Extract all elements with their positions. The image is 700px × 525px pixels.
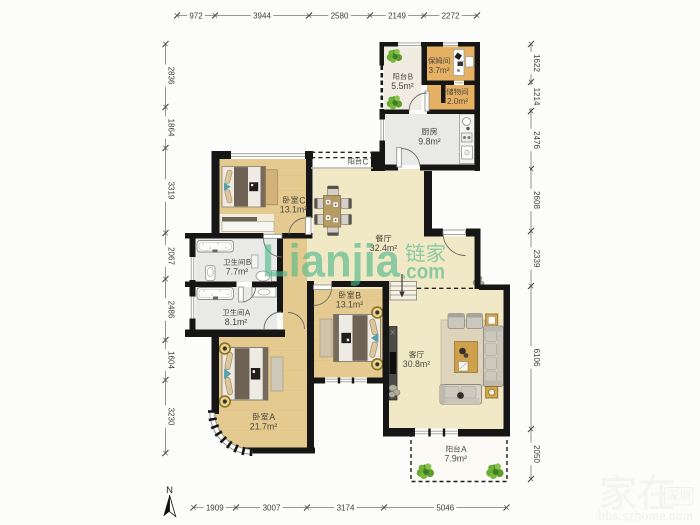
svg-text:1909: 1909 [206, 503, 224, 512]
svg-text:7.9m²: 7.9m² [445, 454, 468, 464]
svg-text:1864: 1864 [166, 119, 175, 137]
svg-text:Lianjia: Lianjia [262, 235, 400, 287]
svg-text:5046: 5046 [436, 503, 454, 512]
svg-text:.com: .com [401, 261, 445, 284]
svg-text:2608: 2608 [532, 191, 541, 209]
svg-text:1214: 1214 [532, 88, 541, 106]
svg-text:3319: 3319 [166, 182, 175, 200]
svg-text:2486: 2486 [166, 301, 175, 319]
svg-text:bbs.szhome.com: bbs.szhome.com [598, 508, 693, 524]
svg-text:N: N [166, 485, 173, 496]
svg-text:2580: 2580 [331, 11, 349, 20]
svg-text:3230: 3230 [166, 408, 175, 426]
svg-text:3174: 3174 [337, 503, 355, 512]
svg-text:2067: 2067 [166, 247, 175, 265]
svg-text:2149: 2149 [388, 11, 406, 20]
svg-text:2272: 2272 [442, 11, 460, 20]
svg-text:972: 972 [189, 11, 203, 20]
svg-text:13.1m²: 13.1m² [280, 205, 307, 215]
svg-text:6106: 6106 [532, 349, 541, 367]
svg-text:2836: 2836 [166, 67, 175, 85]
svg-text:2476: 2476 [532, 131, 541, 149]
svg-text:2050: 2050 [532, 445, 541, 463]
svg-text:2339: 2339 [532, 250, 541, 268]
svg-text:8.1m²: 8.1m² [225, 317, 248, 327]
svg-text:2.0m²: 2.0m² [447, 97, 468, 106]
svg-text:30.8m²: 30.8m² [403, 359, 430, 369]
svg-text:5.5m²: 5.5m² [391, 81, 414, 91]
svg-text:3944: 3944 [253, 11, 271, 20]
svg-text:3.7m²: 3.7m² [429, 66, 450, 75]
svg-text:C: C [363, 157, 369, 166]
svg-text:21.7m²: 21.7m² [250, 421, 277, 431]
svg-text:9.8m²: 9.8m² [418, 136, 441, 146]
svg-text:1604: 1604 [166, 351, 175, 369]
svg-text:3007: 3007 [263, 503, 281, 512]
svg-text:7.7m²: 7.7m² [226, 267, 249, 277]
svg-text:13.1m²: 13.1m² [336, 300, 363, 310]
svg-text:1622: 1622 [532, 54, 541, 72]
